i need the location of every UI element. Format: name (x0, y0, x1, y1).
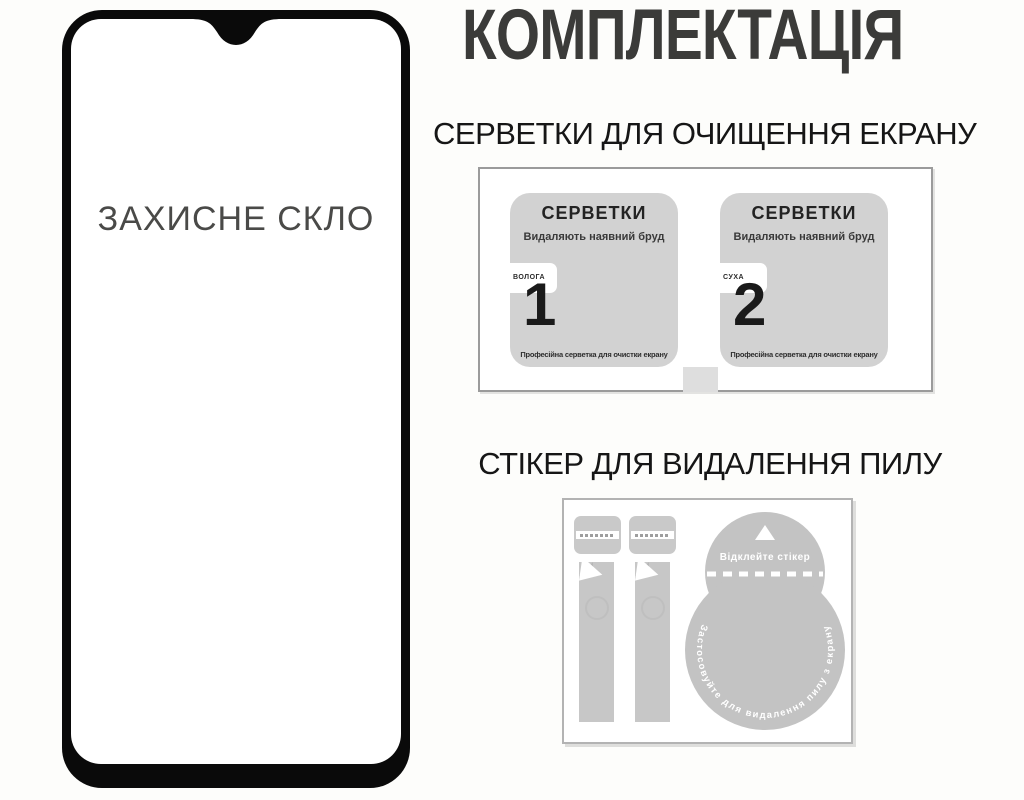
wipes-heading: СЕРВЕТКИ ДЛЯ ОЧИЩЕННЯ ЕКРАНУ (433, 116, 957, 152)
box-bottom-tab (683, 367, 718, 392)
wipe-subtitle: Видаляють наявний бруд (720, 231, 888, 243)
wipe-number: 2 (733, 275, 766, 335)
mini-sticker-label-strip (576, 531, 619, 539)
peel-label: Відклейте стікер (720, 552, 811, 563)
page-title: КОМПЛЕКТАЦІЯ (462, 0, 903, 71)
wipe-title: СЕРВЕТКИ (510, 203, 678, 224)
strip-circle-cutout (585, 596, 609, 620)
dust-removal-sticker: Відклейте стікер Застосовуйте для видале… (679, 508, 859, 742)
mini-sticker (574, 516, 621, 554)
wipe-footnote: Професійна серветка для очистки екрану (510, 350, 678, 359)
wipe-footnote: Професійна серветка для очистки екрану (720, 350, 888, 359)
wipe-card-dry: СЕРВЕТКИ Видаляють наявний бруд СУХА 2 П… (720, 193, 888, 367)
sticker-heading: СТІКЕР ДЛЯ ВИДАЛЕННЯ ПИЛУ (448, 446, 972, 482)
wipes-diagram: СЕРВЕТКИ Видаляють наявний бруд ВОЛОГА 1… (478, 167, 933, 392)
mini-sticker (629, 516, 676, 554)
wipe-card-wet: СЕРВЕТКИ Видаляють наявний бруд ВОЛОГА 1… (510, 193, 678, 367)
strip-fold-icon (574, 553, 603, 580)
wipe-subtitle: Видаляють наявний бруд (510, 231, 678, 243)
wipe-number: 1 (523, 275, 556, 335)
strip-fold-icon (630, 553, 659, 580)
sticker-strip (579, 562, 614, 722)
glass-label: ЗАХИСНЕ СКЛО (62, 200, 410, 239)
sticker-diagram: Відклейте стікер Застосовуйте для видале… (562, 498, 853, 744)
tempered-glass-outline (62, 10, 410, 788)
mini-sticker-label-strip (631, 531, 674, 539)
strip-circle-cutout (641, 596, 665, 620)
sticker-strip (635, 562, 670, 722)
wipe-title: СЕРВЕТКИ (720, 203, 888, 224)
phone-glass-frame-icon (62, 10, 410, 788)
